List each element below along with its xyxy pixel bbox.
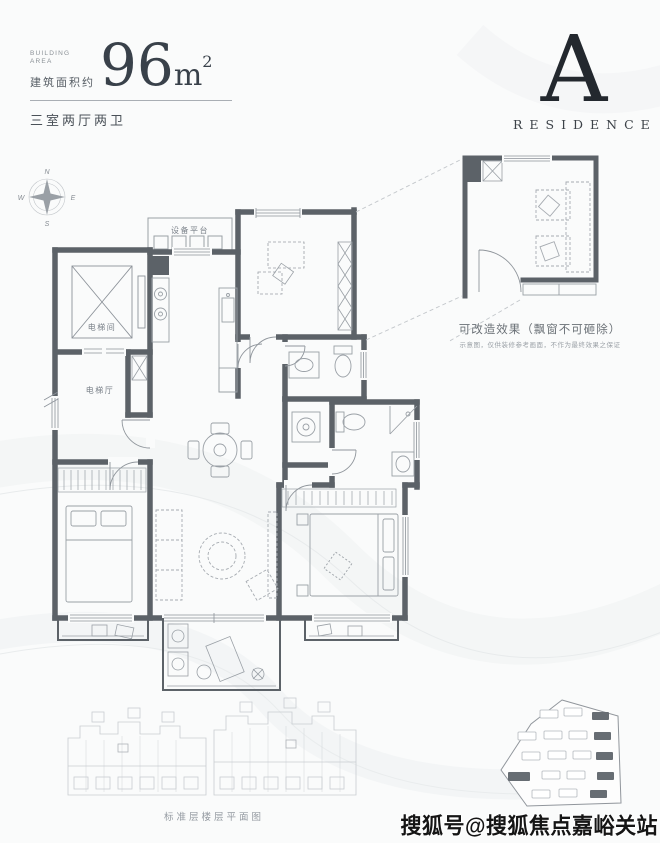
area-value: 96m2 <box>100 36 212 94</box>
label-equipment-platform: 设备平台 <box>171 225 209 235</box>
label-elevator-hall: 电梯厅 <box>86 385 115 395</box>
header-divider <box>30 100 232 101</box>
building-area-cn: 建筑面积约 <box>30 74 100 90</box>
inset-plan: 可改造效果（飘窗不可砸除） 示意图，仅供装修参考画面，不作为最终效果之保证 <box>459 152 622 349</box>
floor-caption: 标准层楼层平面图 <box>164 811 264 823</box>
watermark: 搜狐号@搜狐焦点嘉峪关站 <box>401 809 658 841</box>
brand-mark: A RESIDENCE <box>506 26 642 132</box>
compass-s: S <box>45 221 50 228</box>
floorplan-flyer: { "header": { "building_area_en_line1": … <box>0 0 660 843</box>
compass-w: W <box>18 195 26 202</box>
inset-note: 示意图，仅供装修参考画面，不作为最终效果之保证 <box>460 340 621 349</box>
inset-caption: 可改造效果（飘窗不可砸除） <box>459 322 622 336</box>
compass-e: E <box>71 195 76 202</box>
label-elevator-shaft: 电梯间 <box>88 322 117 332</box>
brand-letter: A <box>506 26 642 113</box>
building-area-en: BUILDING AREA <box>30 50 100 66</box>
site-plan-map <box>501 700 621 806</box>
header: BUILDING AREA 建筑面积约 96m2 三室两厅两卫 <box>30 36 232 129</box>
compass-n: N <box>44 169 50 176</box>
layout-description: 三室两厅两卫 <box>30 110 232 129</box>
compass-icon: N S W E <box>18 169 76 228</box>
brand-word: RESIDENCE <box>506 117 642 132</box>
